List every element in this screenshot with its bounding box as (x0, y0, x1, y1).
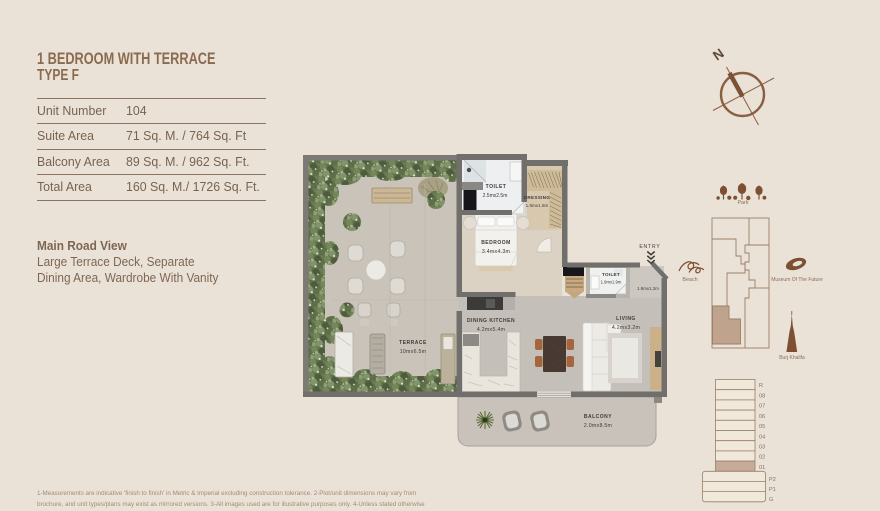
svg-text:Burj Khalifa: Burj Khalifa (779, 355, 805, 361)
svg-text:P2: P2 (769, 477, 776, 483)
svg-text:01: 01 (759, 465, 765, 471)
svg-text:BEDROOM: BEDROOM (481, 240, 511, 246)
svg-text:BALCONY: BALCONY (584, 414, 612, 420)
svg-text:1.6mx1.8m: 1.6mx1.8m (526, 203, 549, 208)
svg-text:Park: Park (737, 200, 748, 206)
svg-text:4.2mx5.4m: 4.2mx5.4m (477, 327, 505, 333)
svg-text:TERRACE: TERRACE (399, 340, 427, 346)
svg-text:1.9mx1.2m: 1.9mx1.2m (637, 286, 659, 291)
svg-text:08: 08 (759, 394, 765, 400)
svg-text:N: N (710, 46, 727, 64)
svg-text:07: 07 (759, 404, 765, 410)
svg-text:05: 05 (759, 424, 765, 430)
svg-text:DRESSING: DRESSING (524, 195, 551, 200)
svg-text:P1: P1 (769, 487, 776, 493)
svg-text:06: 06 (759, 414, 765, 420)
svg-text:TOILET: TOILET (602, 272, 620, 277)
svg-text:02: 02 (759, 455, 765, 461)
svg-text:LIVING: LIVING (616, 316, 636, 322)
svg-text:ENTRY: ENTRY (639, 244, 660, 250)
svg-text:R: R (759, 383, 763, 389)
svg-text:03: 03 (759, 445, 765, 451)
svg-text:1.9mx1.9m: 1.9mx1.9m (601, 280, 622, 285)
svg-text:2.5mx2.5m: 2.5mx2.5m (483, 193, 508, 199)
svg-text:04: 04 (759, 434, 765, 440)
svg-text:2.0mx8.5m: 2.0mx8.5m (584, 423, 612, 429)
svg-text:DINING KITCHEN: DINING KITCHEN (467, 318, 515, 324)
svg-text:TOILET: TOILET (486, 184, 507, 190)
svg-text:4.2mx3.2m: 4.2mx3.2m (612, 325, 640, 331)
svg-text:10mx6.5m: 10mx6.5m (400, 349, 427, 355)
svg-text:3.4mx4.3m: 3.4mx4.3m (482, 249, 510, 255)
svg-text:Beach: Beach (682, 277, 697, 283)
svg-text:G: G (769, 497, 773, 503)
svg-text:Museum Of The Future: Museum Of The Future (771, 277, 823, 283)
